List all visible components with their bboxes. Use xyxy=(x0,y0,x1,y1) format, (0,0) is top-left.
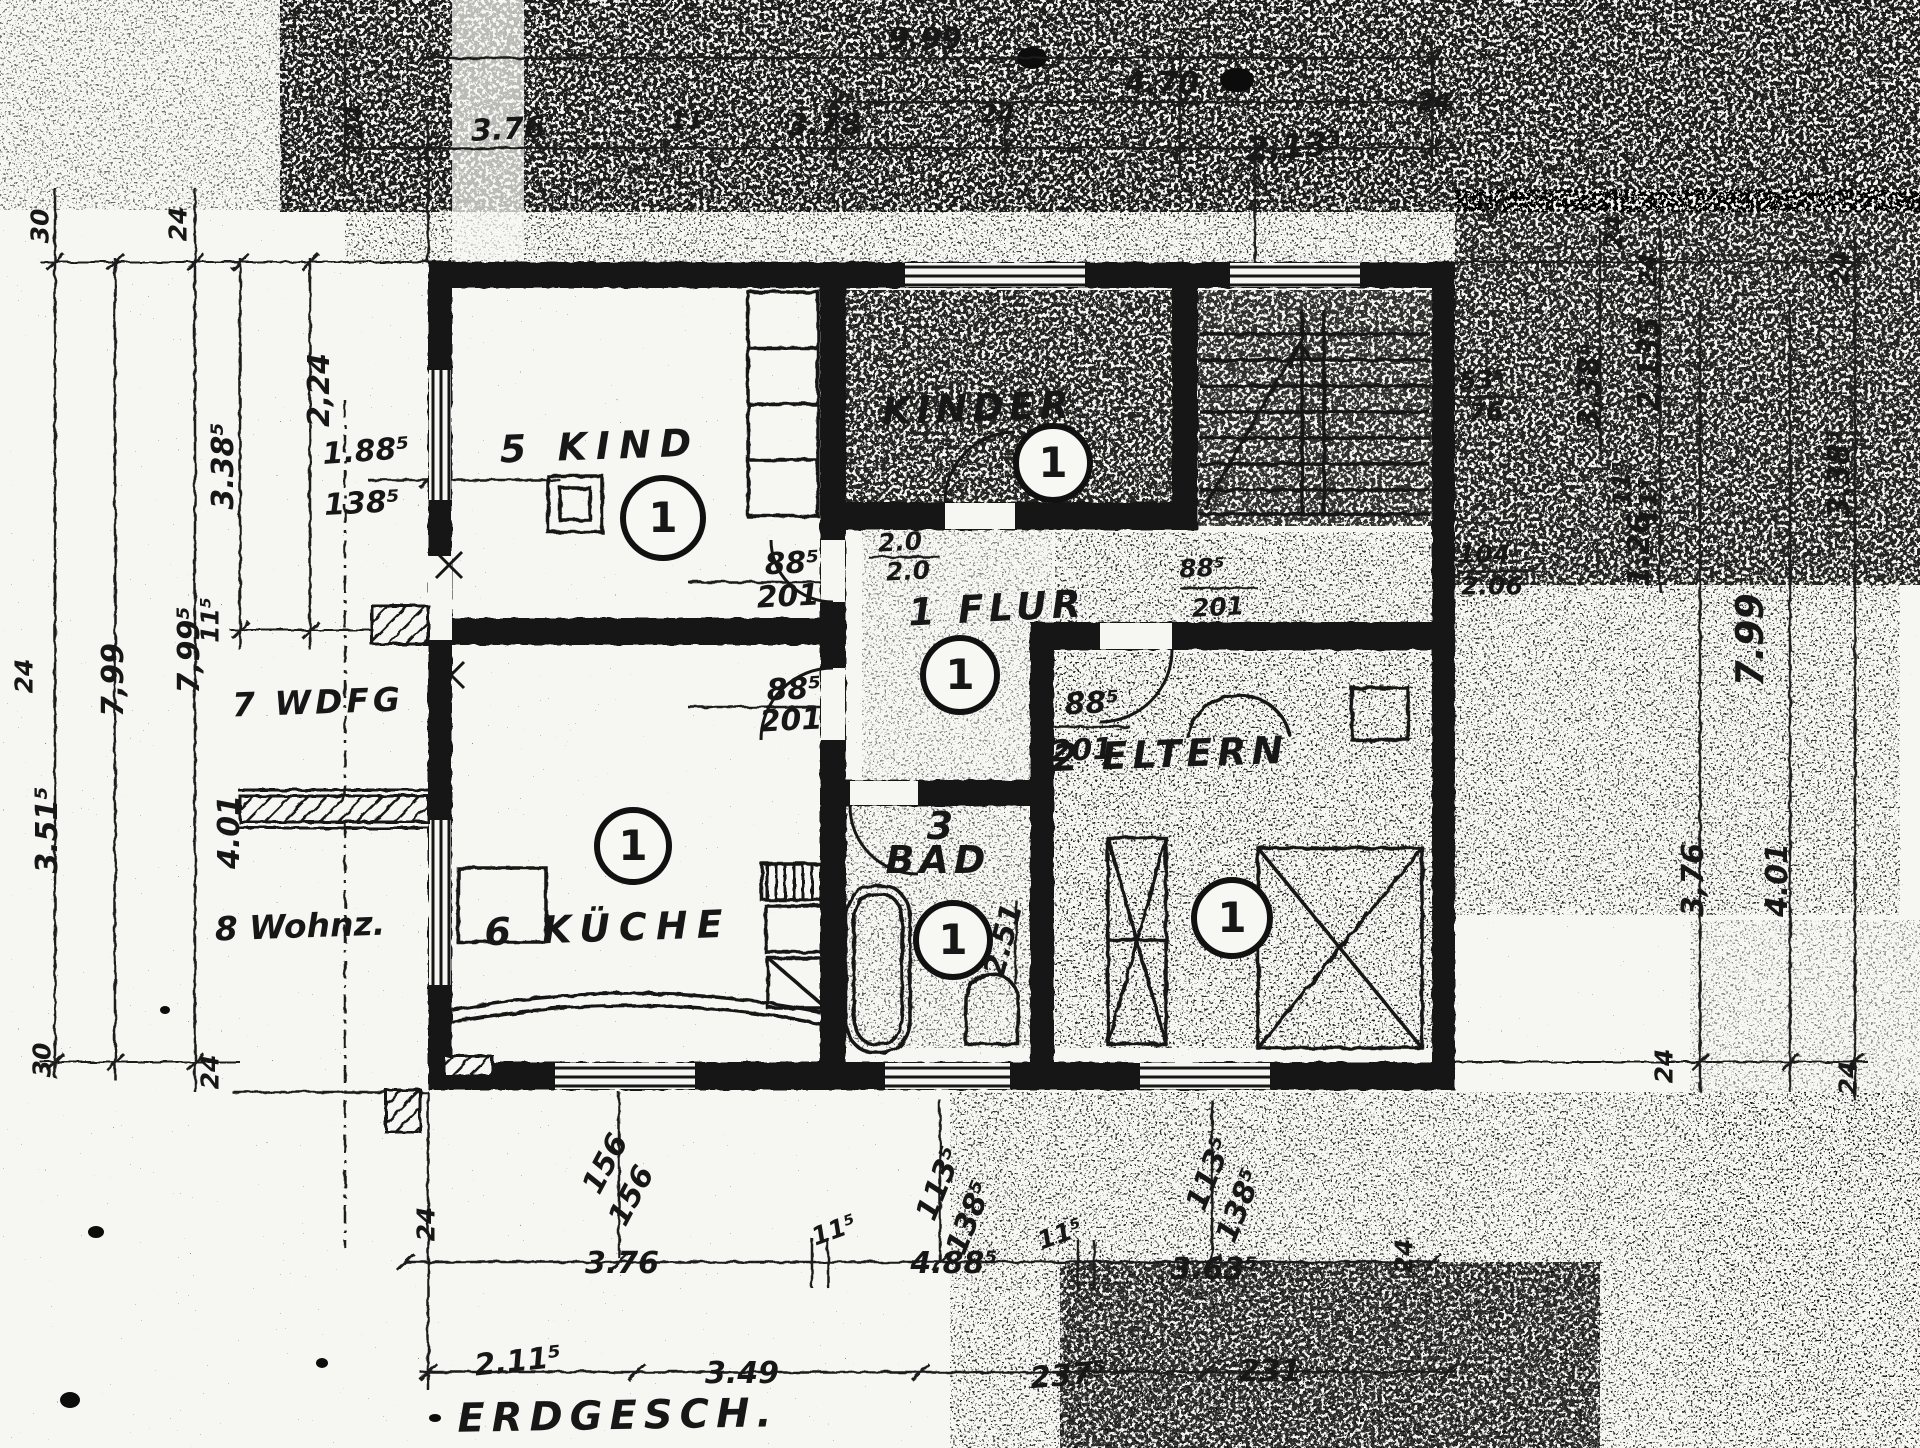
room-label-bad: BAD xyxy=(886,841,991,879)
dim-label: 4.01 xyxy=(215,795,245,869)
door-dim: 2.0 xyxy=(885,557,931,584)
door-dim: 201 xyxy=(759,704,823,737)
unit-number-circle-text: 1 xyxy=(618,825,647,867)
dim-label: 2.11⁵ xyxy=(473,1343,563,1382)
room-label-wdfg: 7 WDFG xyxy=(232,683,405,722)
unit-number-circle-text: 1 xyxy=(1217,897,1246,939)
dim-label: 138⁵ xyxy=(323,487,400,521)
dim-label: 3.63⁵ xyxy=(1170,1255,1257,1285)
dim-label: 7,99⁵ xyxy=(175,606,205,693)
dim-label: 24 xyxy=(198,1055,223,1090)
dim-label: 231 xyxy=(1239,1357,1302,1387)
dim-label: 3.78 xyxy=(787,111,861,141)
dim-label: 1.26 xyxy=(1625,513,1655,587)
door-dim: 88⁵ xyxy=(1179,554,1226,581)
dim-label: 3.49 xyxy=(705,1359,779,1389)
dim-label: 9.99 xyxy=(888,25,962,55)
unit-number-circle-text: 1 xyxy=(1038,442,1067,484)
dim-label: 24 xyxy=(12,659,37,694)
room-label-kinder: KINDER xyxy=(881,386,1074,431)
door-dim: 201 xyxy=(756,580,820,613)
dim-label: 24 xyxy=(414,1207,439,1242)
dim-label: 2,135 xyxy=(1635,317,1665,412)
dim-label: 24 xyxy=(1636,253,1661,288)
room-label-kueche: 6 KÜCHE xyxy=(484,905,732,952)
unit-number-circle-text: 1 xyxy=(945,654,974,696)
drawing-title: ERDGESCH. xyxy=(457,1393,779,1439)
dim-label: 2,24 xyxy=(305,353,335,427)
dim-label: 3.38⁵ xyxy=(1825,430,1855,517)
dim-label: 3,76 xyxy=(1679,843,1709,917)
dim-label: 24 xyxy=(1652,1049,1677,1084)
dim-label: 3.51⁵ xyxy=(33,786,63,873)
dim-label: 4.01 xyxy=(1763,843,1793,917)
dim-label: 7.99 xyxy=(1731,593,1769,687)
dim-label: 53⁵ xyxy=(1459,366,1506,393)
scanned-floorplan-page: 9.99 4.70 3.76 11⁵ 3.78 24 2,13⁵ 24 24 3… xyxy=(0,0,1920,1448)
dim-label: 11⁵ xyxy=(669,108,715,133)
dim-label: 4.88⁵ xyxy=(910,1249,997,1279)
dim-label: 24 xyxy=(1602,215,1627,250)
dim-label: 104 xyxy=(1458,542,1510,567)
dim-label: 3.76 xyxy=(585,1249,659,1279)
dim-label: 24 xyxy=(1828,251,1853,286)
dim-label: 24 xyxy=(342,105,367,140)
dim-label: 7,99 xyxy=(99,643,129,717)
door-dim: 2.0 xyxy=(877,528,923,555)
dim-label: 76 xyxy=(1469,400,1504,425)
room-label-kind: 5 KIND xyxy=(499,424,701,469)
dim-label: 3,38⁵ xyxy=(1575,342,1605,429)
room-label-flur: 1 FLUR xyxy=(907,584,1087,631)
unit-number-circle-text: 1 xyxy=(938,919,967,961)
dim-label: 30 xyxy=(30,1043,55,1078)
dim-label: 3.76 xyxy=(470,113,545,147)
dim-label: 4.70 xyxy=(1125,69,1199,99)
dim-label: 24 xyxy=(981,102,1016,127)
door-dim: 201 xyxy=(1191,593,1244,621)
dim-label: 24 xyxy=(1417,90,1452,115)
dim-label: 2,13⁵ xyxy=(1245,126,1343,166)
door-dim: 88⁵ xyxy=(1064,688,1120,721)
door-dim: 88⁵ xyxy=(764,548,820,581)
unit-number-circle-text: 1 xyxy=(648,497,677,539)
dim-label: 3.38⁵ xyxy=(209,422,239,509)
dim-label: 24 xyxy=(1836,1061,1861,1096)
door-dim: 201 xyxy=(1050,734,1114,767)
dim-label: 11⁵ xyxy=(1610,461,1635,507)
dim-label: 24 xyxy=(166,207,191,242)
room-label-wohnzimmer: 8 Wohnz. xyxy=(214,907,386,946)
dim-label: 237⁵ xyxy=(1029,1358,1107,1394)
dim-label: 2.06 xyxy=(1461,574,1523,599)
dim-label: 24 xyxy=(1392,1239,1417,1274)
dim-label: 1.88⁵ xyxy=(321,434,410,470)
dim-label: 30 xyxy=(28,209,53,244)
